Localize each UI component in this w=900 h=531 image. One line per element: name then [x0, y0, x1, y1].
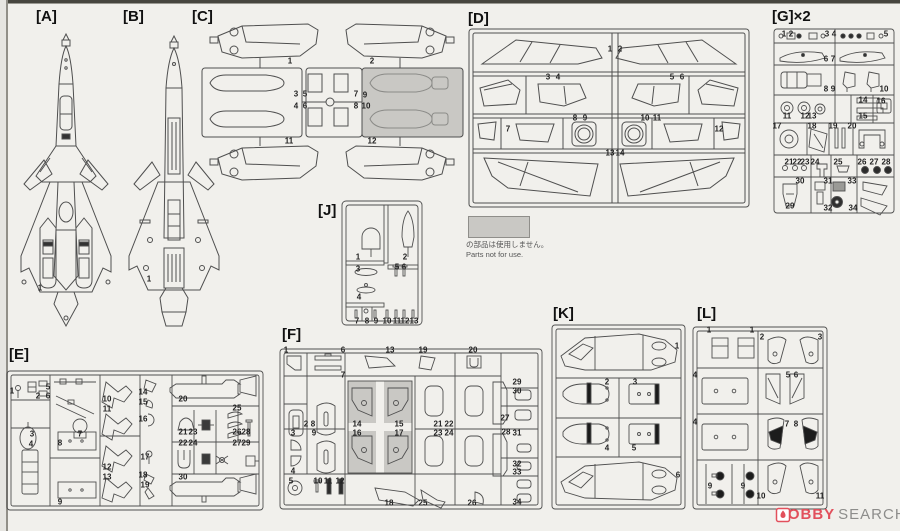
part-number: 4	[605, 445, 609, 453]
part-number: 2	[304, 421, 308, 429]
part-number: 4	[556, 74, 560, 82]
part-number: 25	[233, 405, 242, 413]
part-number: 2	[403, 254, 407, 262]
part-number: 5	[46, 384, 50, 392]
part-number: 12	[715, 126, 724, 134]
part-number: 10	[103, 396, 112, 404]
part-number: 12	[103, 464, 112, 472]
sprue-f-label: [F]	[282, 326, 301, 343]
hobby-search-watermark: HOBBY SEARCH	[776, 506, 900, 523]
part-number: 26	[858, 159, 867, 167]
sprue-k-label: [K]	[553, 305, 574, 322]
part-number: 1	[750, 327, 754, 335]
sprue-e: [E]	[6, 346, 268, 514]
part-number: 8	[354, 103, 358, 111]
part-number: 15	[859, 113, 868, 121]
part-number: 15	[395, 421, 404, 429]
part-number: 24	[189, 440, 198, 448]
part-number: 11	[783, 113, 791, 121]
part-number: 11	[103, 406, 111, 414]
part-number: 1	[284, 347, 288, 355]
part-number: 15	[139, 399, 148, 407]
part-number: 23	[801, 159, 810, 167]
part-number: 28	[242, 429, 251, 437]
part-number: 3	[546, 74, 550, 82]
note-ja: の部品は使用しません。	[466, 240, 548, 250]
part-number: 2	[36, 393, 40, 401]
part-number: 27	[870, 159, 879, 167]
part-number: 2	[618, 46, 622, 54]
part-number: 25	[419, 500, 428, 508]
part-number: 3	[818, 334, 822, 342]
part-number: 1	[10, 388, 14, 396]
part-number: 9	[831, 86, 835, 94]
sprue-d: [D]	[462, 4, 754, 264]
part-number: 6	[46, 393, 50, 401]
part-number: 26	[233, 429, 242, 437]
part-number: 19	[419, 347, 428, 355]
part-number: 2	[789, 31, 793, 39]
part-number: 1	[147, 276, 151, 284]
not-for-use-swatch	[468, 216, 530, 238]
part-number: 6	[303, 103, 307, 111]
part-number: 13	[606, 150, 615, 158]
part-number: 11	[816, 493, 824, 501]
part-number: 9	[312, 430, 316, 438]
part-number: 6	[794, 372, 798, 380]
part-number: 23	[189, 429, 198, 437]
part-number: 29	[786, 203, 795, 211]
part-number: 1	[288, 58, 292, 66]
part-number: 14	[616, 150, 625, 158]
part-number: 28	[502, 429, 511, 437]
part-number: 33	[513, 469, 522, 477]
part-number: 1	[675, 343, 679, 351]
part-number: 2	[370, 58, 374, 66]
part-number: 5	[884, 31, 888, 39]
part-number: 12	[401, 318, 410, 326]
part-number: 10	[383, 318, 392, 326]
part-number: 31	[513, 430, 522, 438]
part-number: 4	[693, 419, 697, 427]
sprue-g-label: [G]×2	[772, 8, 811, 25]
sprue-b-label: [B]	[123, 8, 144, 25]
part-number: 6	[676, 472, 680, 480]
part-number: 6	[680, 74, 684, 82]
part-number: 28	[882, 159, 891, 167]
sprue-c-art	[200, 20, 465, 186]
part-number: 9	[583, 115, 587, 123]
part-number: 21	[179, 429, 188, 437]
part-number: 34	[513, 499, 522, 507]
sprue-f: [F]	[278, 326, 546, 512]
part-number: 5	[395, 264, 399, 272]
sprue-a: [A]	[10, 6, 122, 331]
part-number: 14	[859, 97, 868, 105]
part-number: 10	[757, 493, 766, 501]
part-number: 7	[355, 318, 359, 326]
part-number: 17	[773, 123, 782, 131]
part-number: 7	[341, 372, 345, 380]
part-number: 10	[641, 115, 650, 123]
part-number: 3	[291, 430, 295, 438]
part-number: 11	[324, 478, 332, 486]
sprue-d-label: [D]	[468, 10, 489, 27]
part-number: 4	[294, 103, 298, 111]
watermark-brand-sub: SEARCH	[838, 506, 900, 523]
part-number: 19	[141, 482, 150, 490]
part-number: 4	[291, 468, 295, 476]
part-number: 30	[179, 474, 188, 482]
part-number: 12	[336, 478, 345, 486]
sprue-a-art	[10, 30, 122, 330]
part-number: 3	[30, 431, 34, 439]
part-number: 22	[179, 440, 188, 448]
sprue-a-label: [A]	[36, 8, 57, 25]
part-number: 31	[824, 178, 833, 186]
part-number: 10	[314, 478, 323, 486]
part-number: 25	[834, 159, 843, 167]
sprue-k-art	[551, 324, 686, 510]
part-number: 27	[501, 415, 510, 423]
part-number: 26	[468, 500, 477, 508]
part-number: 10	[880, 86, 889, 94]
part-number: 1	[38, 285, 42, 293]
part-number: 3	[825, 31, 829, 39]
part-number: 29	[242, 440, 251, 448]
part-number: 7	[831, 56, 835, 64]
part-number: 8	[311, 421, 315, 429]
hobby-search-logo-icon	[776, 508, 790, 522]
part-number: 23	[434, 430, 443, 438]
part-number: 13	[386, 347, 395, 355]
part-number: 17	[141, 454, 150, 462]
part-number: 1	[782, 31, 786, 39]
part-number: 1	[707, 327, 711, 335]
part-number: 8	[365, 318, 369, 326]
part-number: 5	[303, 91, 307, 99]
sprue-map-scan: [A]	[0, 0, 900, 531]
part-number: 34	[849, 205, 858, 213]
part-number: 1	[356, 254, 360, 262]
part-number: 6	[824, 56, 828, 64]
part-number: 16	[353, 430, 362, 438]
part-number: 20	[469, 347, 478, 355]
part-number: 3	[356, 266, 360, 274]
part-number: 17	[395, 430, 404, 438]
part-number: 3	[294, 91, 298, 99]
part-number: 24	[811, 159, 820, 167]
part-number: 4	[29, 441, 33, 449]
part-number: 32	[824, 205, 833, 213]
sprue-k: [K] 123456	[548, 300, 688, 512]
part-number: 6	[402, 264, 406, 272]
note-en: Parts not for use.	[466, 250, 548, 260]
sprue-d-art	[468, 28, 750, 210]
sprue-l: [L]	[692, 300, 832, 512]
part-number: 33	[848, 178, 857, 186]
part-number: 5	[632, 445, 636, 453]
part-number: 13	[410, 318, 419, 326]
part-number: 18	[808, 123, 817, 131]
part-number: 7	[506, 126, 510, 134]
part-number: 4	[357, 294, 361, 302]
part-number: 10	[362, 103, 371, 111]
part-number: 8	[824, 86, 828, 94]
sprue-j-label: [J]	[318, 202, 336, 219]
part-number: 5	[289, 478, 293, 486]
part-number: 6	[341, 347, 345, 355]
part-number: 2	[760, 334, 764, 342]
part-number: 11	[653, 115, 661, 123]
part-number: 9	[374, 318, 378, 326]
sprue-l-label: [L]	[697, 305, 716, 322]
part-number: 11	[285, 138, 293, 146]
part-number: 18	[139, 472, 148, 480]
sprue-l-art	[692, 326, 828, 510]
part-number: 7	[785, 421, 789, 429]
part-number: 8	[794, 421, 798, 429]
part-number: 7	[354, 91, 358, 99]
part-number: 9	[363, 92, 367, 100]
sprue-j: [J] 12356478910111213	[315, 198, 429, 332]
part-number: 21	[434, 421, 443, 429]
part-number: 2	[605, 379, 609, 387]
part-number: 9	[58, 499, 62, 507]
part-number: 24	[445, 430, 454, 438]
part-number: 4	[693, 372, 697, 380]
part-number: 14	[353, 421, 362, 429]
sprue-g: [G]×2	[770, 4, 898, 218]
part-number: 7	[78, 431, 82, 439]
part-number: 8	[573, 115, 577, 123]
part-number: 12	[368, 138, 377, 146]
part-number: 3	[633, 379, 637, 387]
part-number: 14	[139, 389, 148, 397]
part-number: 8	[58, 440, 62, 448]
sprue-c: [C]	[190, 4, 465, 186]
part-number: 29	[513, 379, 522, 387]
part-number: 16	[139, 416, 148, 424]
part-number: 5	[670, 74, 674, 82]
sprue-e-label: [E]	[9, 346, 29, 363]
part-number: 9	[741, 483, 745, 491]
part-number: 4	[832, 31, 836, 39]
part-number: 1	[608, 46, 612, 54]
part-number: 5	[786, 372, 790, 380]
part-number: 9	[708, 483, 712, 491]
part-number: 19	[829, 123, 838, 131]
part-number: 13	[808, 113, 817, 121]
part-number: 30	[513, 388, 522, 396]
part-number: 30	[796, 178, 805, 186]
part-number: 27	[233, 440, 242, 448]
part-number: 18	[385, 500, 394, 508]
part-number: 20	[848, 123, 857, 131]
part-number: 16	[877, 98, 886, 106]
part-number: 22	[445, 421, 454, 429]
part-number: 20	[179, 396, 188, 404]
sprue-j-art	[340, 199, 426, 329]
not-for-use-note: の部品は使用しません。 Parts not for use.	[466, 240, 548, 260]
part-number: 13	[103, 474, 112, 482]
